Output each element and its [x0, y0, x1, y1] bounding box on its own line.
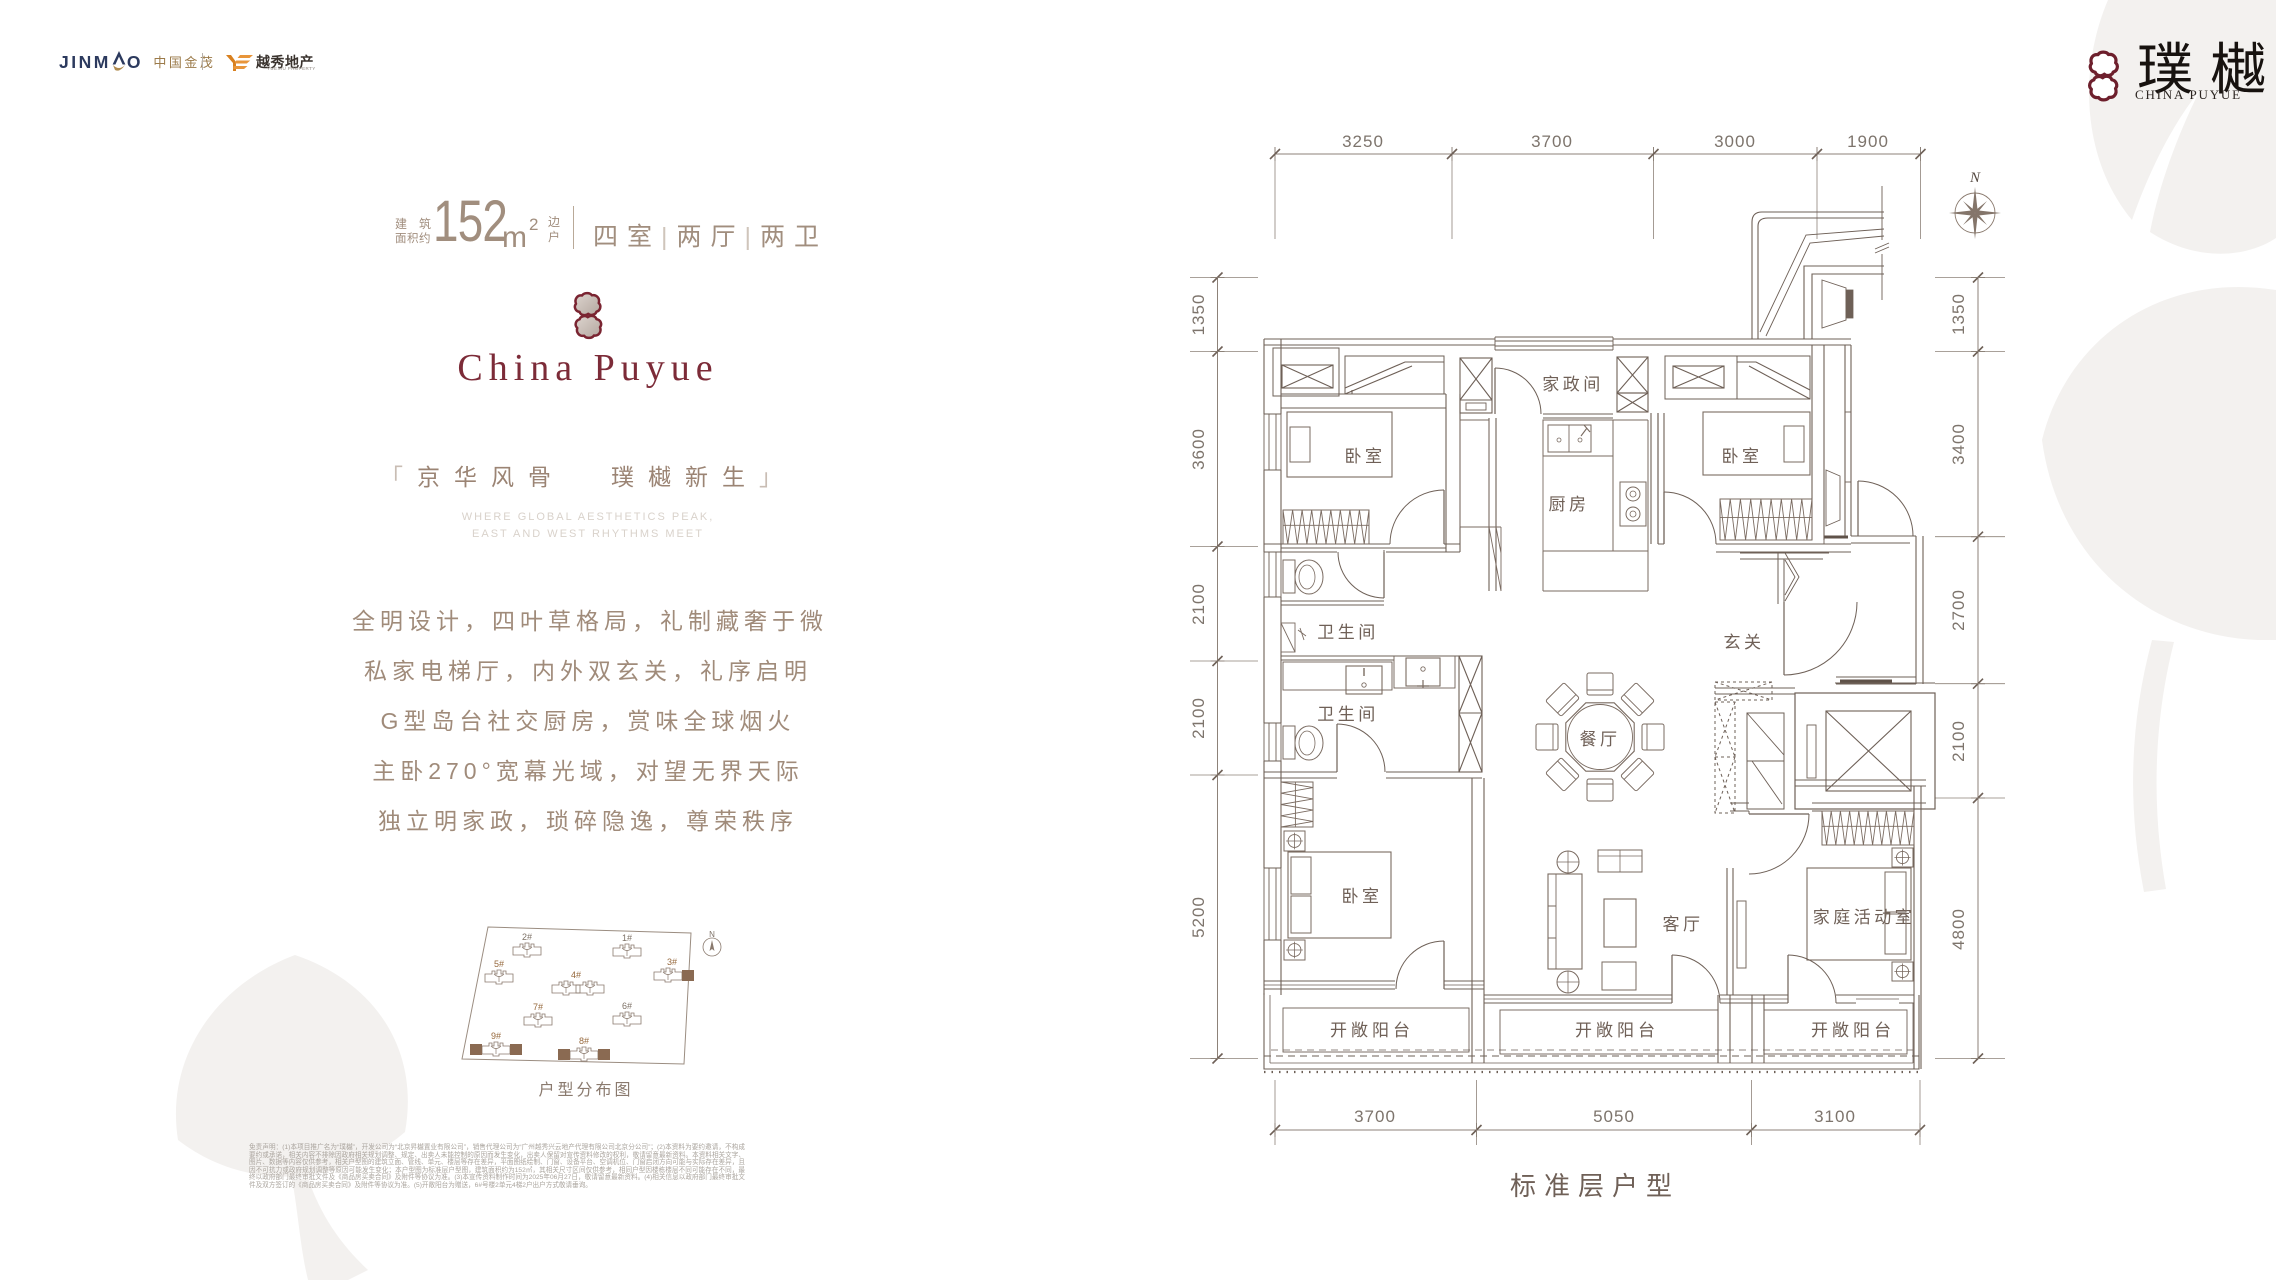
svg-text:3700: 3700 [1354, 1107, 1396, 1126]
svg-text:2100: 2100 [1189, 583, 1208, 625]
svg-text:开敞阳台: 开敞阳台 [1811, 1021, 1895, 1040]
svg-text:餐厅: 餐厅 [1580, 730, 1621, 749]
svg-text:1350: 1350 [1189, 294, 1208, 336]
svg-text:2700: 2700 [1949, 589, 1968, 631]
svg-text:开敞阳台: 开敞阳台 [1575, 1021, 1659, 1040]
svg-text:5200: 5200 [1189, 896, 1208, 938]
svg-text:N: N [1969, 170, 1981, 186]
svg-text:玄关: 玄关 [1724, 633, 1765, 652]
svg-text:3600: 3600 [1189, 428, 1208, 470]
svg-text:卫生间: 卫生间 [1317, 623, 1379, 642]
svg-text:厨房: 厨房 [1549, 495, 1590, 514]
svg-text:3700: 3700 [1531, 132, 1573, 151]
svg-text:3400: 3400 [1949, 423, 1968, 465]
svg-text:3250: 3250 [1342, 132, 1384, 151]
svg-text:开敞阳台: 开敞阳台 [1330, 1021, 1414, 1040]
svg-text:卧室: 卧室 [1722, 447, 1763, 466]
svg-text:客厅: 客厅 [1663, 915, 1704, 934]
svg-text:家政间: 家政间 [1542, 375, 1604, 394]
svg-text:卧室: 卧室 [1342, 887, 1383, 906]
svg-text:1350: 1350 [1949, 293, 1968, 335]
svg-text:3100: 3100 [1814, 1107, 1856, 1126]
svg-text:家庭活动室: 家庭活动室 [1813, 908, 1916, 927]
svg-text:1900: 1900 [1847, 132, 1889, 151]
svg-text:3000: 3000 [1714, 132, 1756, 151]
svg-text:5050: 5050 [1593, 1107, 1635, 1126]
svg-text:卫生间: 卫生间 [1317, 705, 1379, 724]
svg-text:2100: 2100 [1949, 720, 1968, 762]
svg-text:4800: 4800 [1949, 908, 1968, 950]
svg-text:卧室: 卧室 [1345, 447, 1386, 466]
svg-text:2100: 2100 [1189, 697, 1208, 739]
